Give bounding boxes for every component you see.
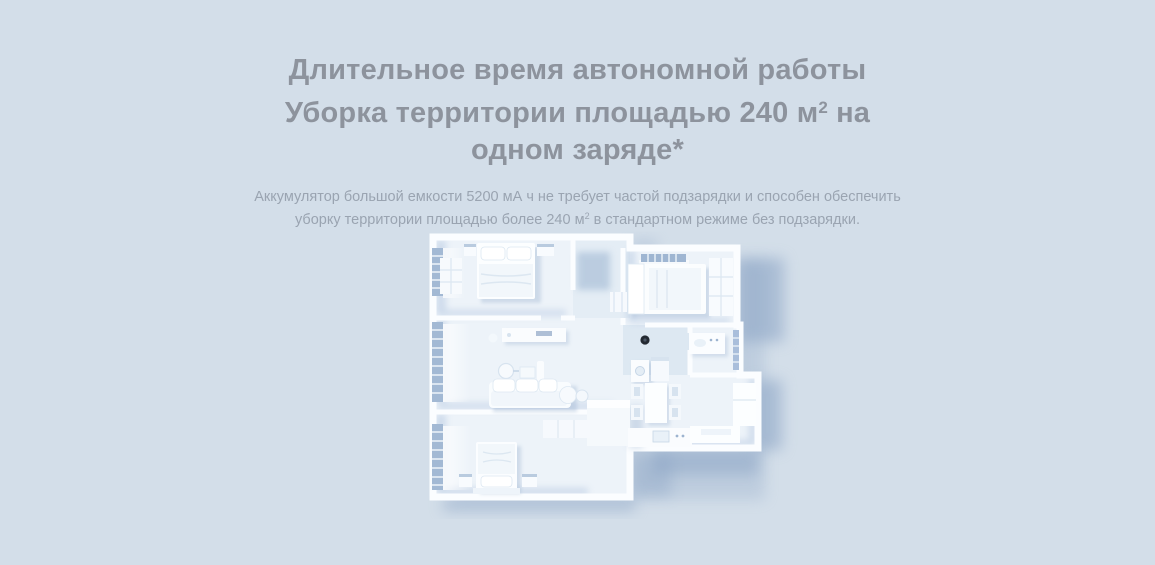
bathroom-furniture — [689, 333, 728, 357]
page-background: { "page": { "background_color": "#d3dee9… — [0, 0, 1155, 565]
sink-basin — [694, 339, 706, 347]
pillow — [481, 247, 505, 260]
closet — [543, 420, 590, 438]
nightstand — [464, 244, 476, 256]
window-strip-bathroom — [733, 330, 739, 370]
side-table — [576, 390, 588, 402]
wardrobe — [440, 258, 462, 294]
title-superscript-2: 2 — [818, 98, 827, 117]
nightstand — [522, 474, 537, 487]
second-bedroom-furniture — [628, 258, 733, 318]
window-strip — [432, 424, 443, 490]
title-line-1: Длительное время автономной работы — [0, 52, 1155, 89]
bed-blanket — [479, 264, 533, 297]
kitchen-sink — [653, 431, 669, 442]
window-strip — [432, 322, 443, 402]
bed-blanket — [478, 444, 515, 474]
floor-plan-illustration — [405, 230, 800, 550]
pillow — [481, 476, 512, 487]
nightstand — [537, 244, 554, 256]
bed-headboard — [473, 488, 520, 494]
side-block-table — [520, 367, 535, 378]
floor-plan-svg — [405, 230, 800, 550]
entry-dark-nook — [577, 252, 610, 290]
refrigerator — [733, 383, 756, 426]
description-line-2: уборку территории площадью более 240 м2 … — [0, 207, 1155, 230]
round-tray-table — [499, 364, 514, 379]
hall-closet — [610, 292, 627, 312]
feature-section: Длительное время автономной работы Уборк… — [0, 52, 1155, 229]
description-line-2-tail: в стандартном режиме без подзарядки. — [590, 212, 860, 228]
nightstand — [459, 474, 472, 487]
title-line-2: Уборка территории площадью 240 м2 на — [0, 89, 1155, 132]
tv-console — [502, 328, 569, 345]
bed-pillow-side — [628, 264, 644, 314]
floor-lamp — [537, 361, 544, 381]
pouf — [489, 334, 498, 343]
window-strip-top — [641, 254, 686, 262]
description-line-2-text: уборку территории площадью более 240 м — [295, 212, 585, 228]
dining-table — [645, 383, 667, 423]
sofa-armrest — [560, 387, 577, 404]
title-line-2-text: Уборка территории площадью 240 м — [285, 97, 818, 129]
window-light — [443, 324, 471, 402]
robot-vacuum-button — [643, 338, 646, 341]
section-title: Длительное время автономной работы Уборк… — [0, 52, 1155, 169]
tv-screen — [536, 331, 552, 336]
title-line-2-tail: на — [828, 97, 870, 129]
title-line-3: одном заряде* — [0, 132, 1155, 169]
wardrobe — [709, 258, 733, 316]
description-line-1: Аккумулятор большой емкости 5200 мА ч не… — [0, 188, 1155, 207]
pillow — [507, 247, 531, 260]
section-description: Аккумулятор большой емкости 5200 мА ч не… — [0, 188, 1155, 229]
